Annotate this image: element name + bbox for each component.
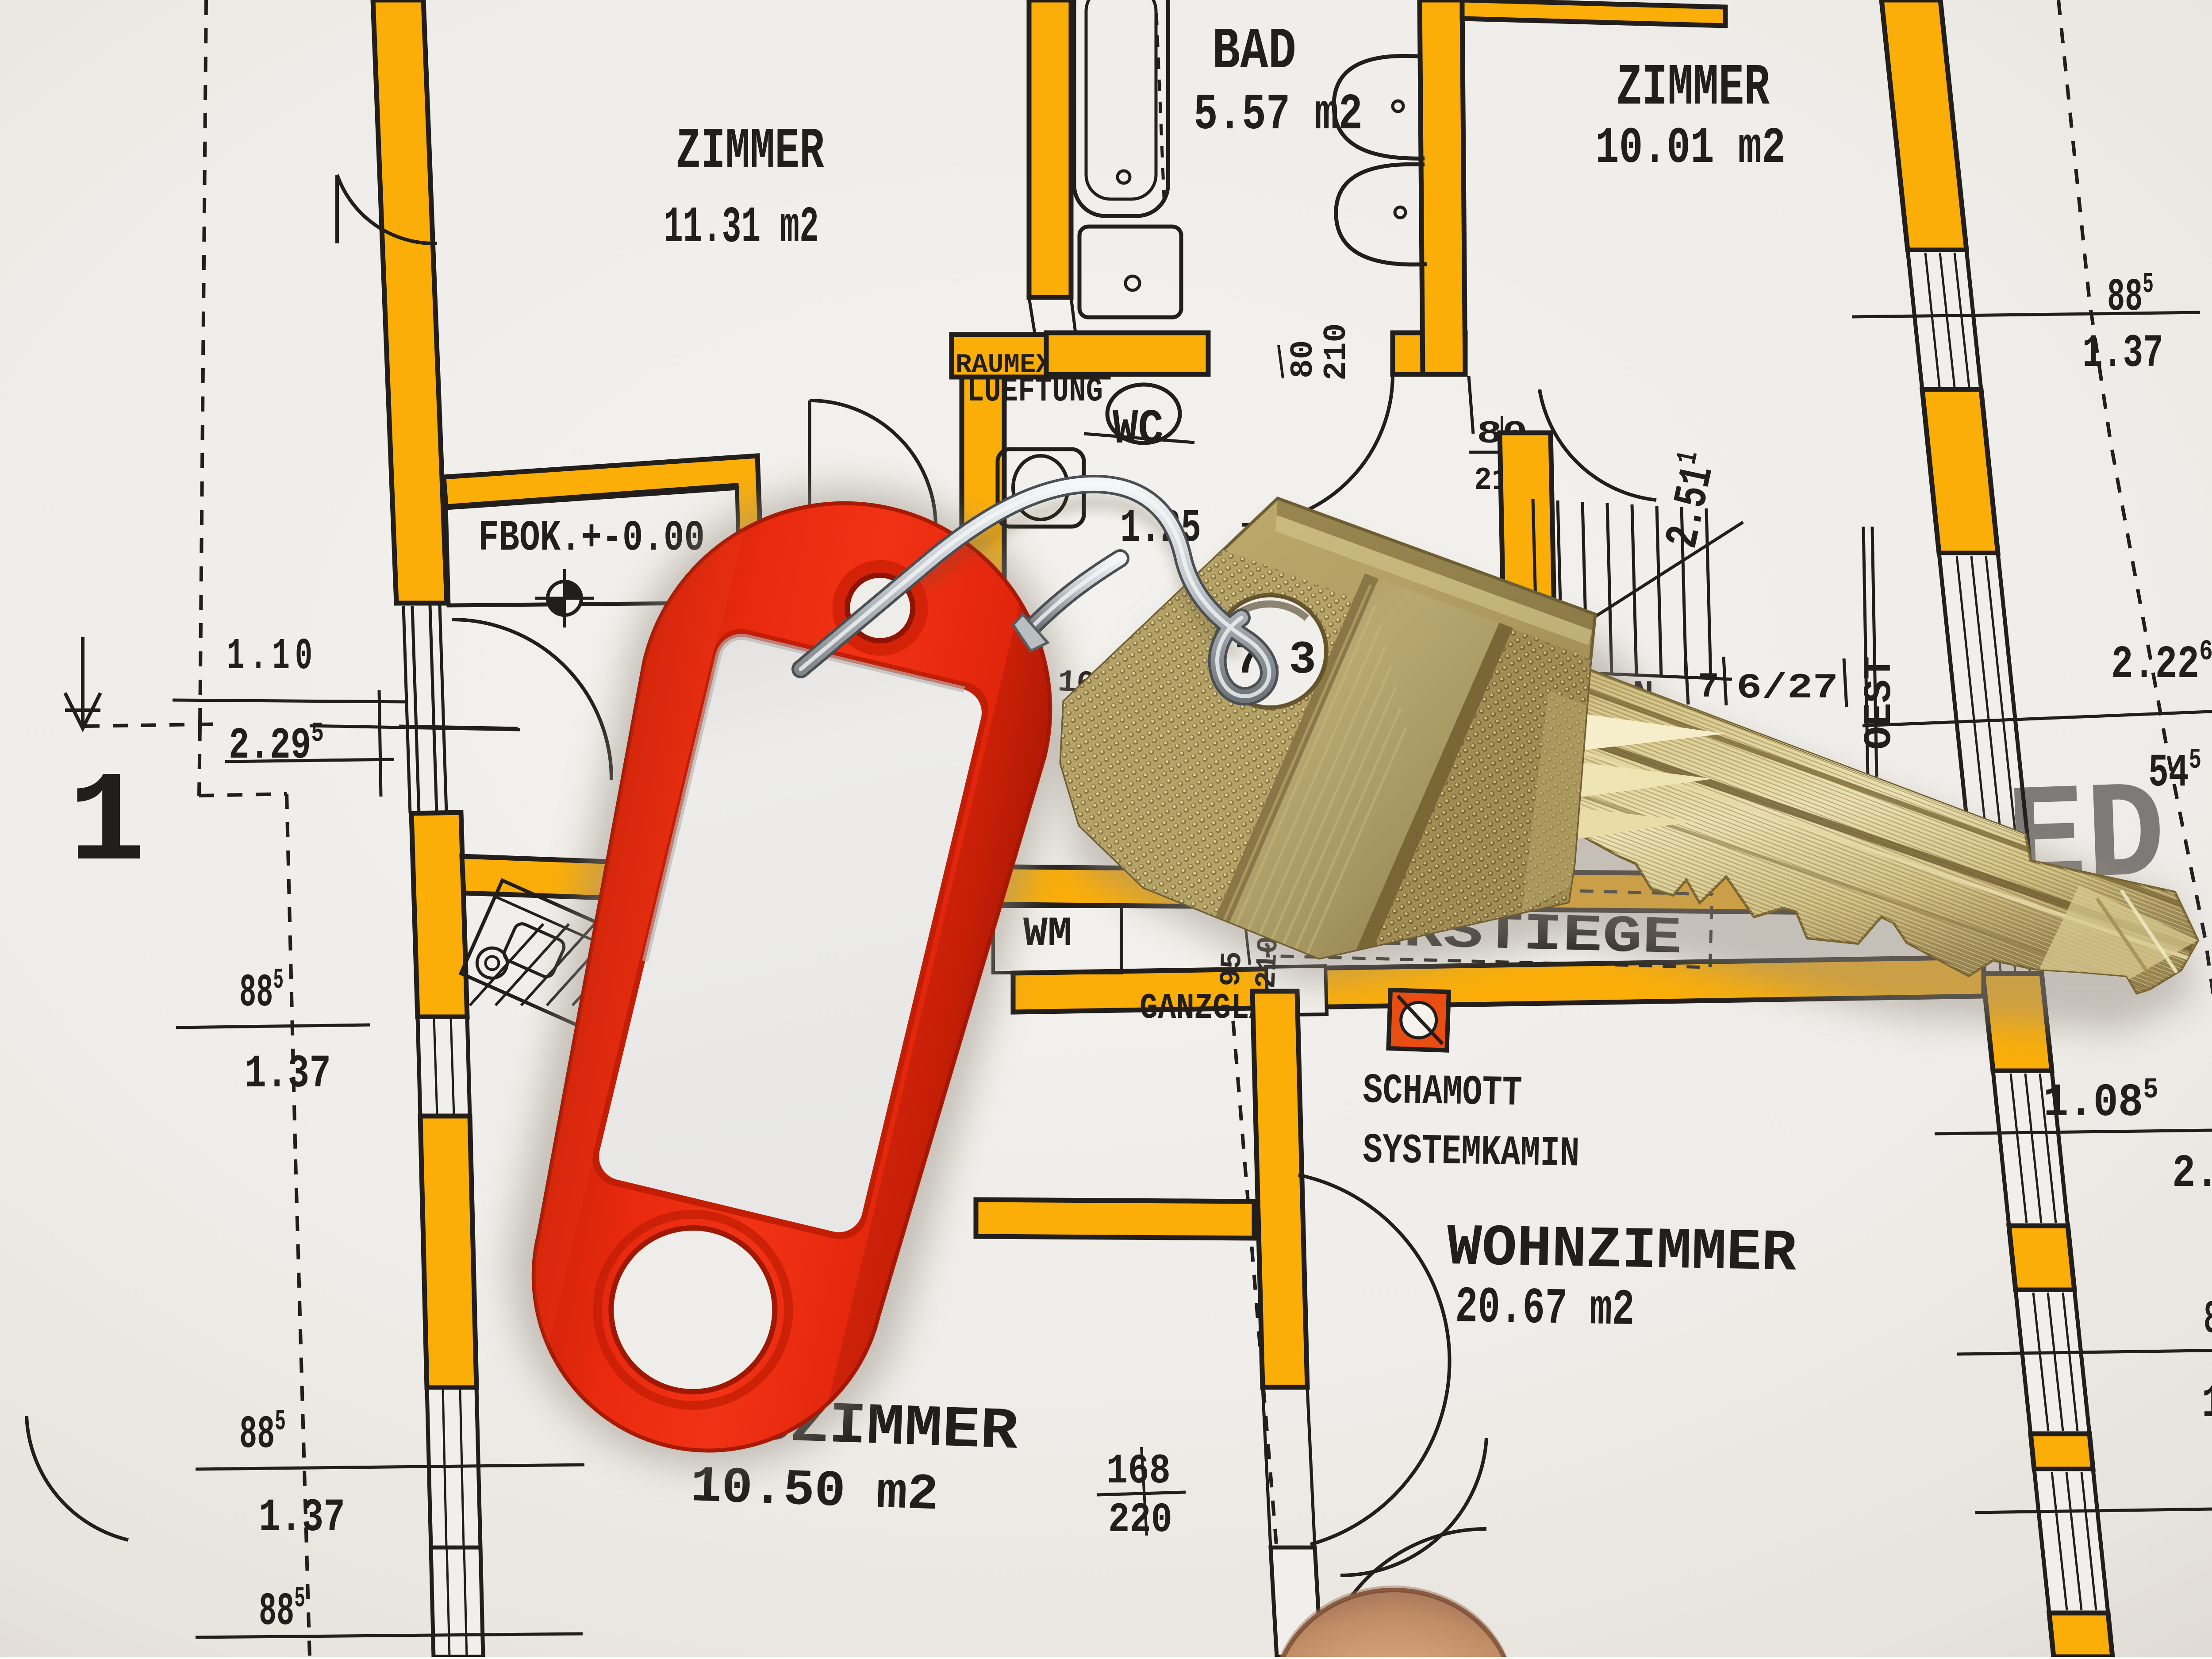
svg-text:885: 885: [2204, 1290, 2212, 1346]
svg-text:2.295: 2.295: [229, 718, 324, 771]
svg-text:WM: WM: [1023, 910, 1072, 958]
svg-text:1.37: 1.37: [259, 1492, 345, 1544]
svg-text:5.57 m2: 5.57 m2: [1194, 86, 1363, 144]
svg-text:10.01 m2: 10.01 m2: [1595, 119, 1786, 177]
svg-text:2.226: 2.226: [2111, 635, 2212, 691]
svg-text:SYSTEMKAMIN: SYSTEMKAMIN: [1362, 1127, 1580, 1178]
svg-text:20.67 m2: 20.67 m2: [1455, 1278, 1635, 1340]
svg-text:1.10: 1.10: [227, 632, 318, 682]
svg-text:1.37: 1.37: [2082, 327, 2163, 380]
svg-text:SCHAMOTT: SCHAMOTT: [1362, 1067, 1522, 1117]
svg-text:OEST: OEST: [1858, 656, 1902, 750]
svg-text:1.37: 1.37: [2202, 1378, 2212, 1430]
svg-text:95: 95: [1214, 951, 1249, 987]
svg-text:2.26: 2.26: [2172, 1147, 2212, 1200]
svg-text:ZIMMER: ZIMMER: [676, 119, 825, 185]
svg-text:ZIMMER: ZIMMER: [1617, 55, 1770, 121]
svg-text:1.37: 1.37: [245, 1048, 331, 1101]
svg-text:1: 1: [69, 752, 146, 897]
svg-text:168: 168: [1106, 1447, 1171, 1495]
svg-text:6/27: 6/27: [1736, 668, 1838, 708]
svg-text:WC: WC: [1113, 402, 1164, 458]
svg-text:1.085: 1.085: [2043, 1074, 2158, 1129]
svg-text:7: 7: [1698, 667, 1719, 708]
svg-text:FBOK.+-0.00: FBOK.+-0.00: [478, 514, 705, 563]
svg-text:220: 220: [1108, 1496, 1172, 1544]
svg-text:WOHNZIMMER: WOHNZIMMER: [1446, 1215, 1797, 1287]
svg-text:LUEFTUNG: LUEFTUNG: [967, 372, 1103, 411]
svg-text:210: 210: [1318, 323, 1355, 381]
svg-text:80: 80: [1285, 340, 1321, 378]
svg-text:BAD: BAD: [1212, 19, 1296, 85]
svg-text:11.31 m2: 11.31 m2: [664, 199, 819, 257]
